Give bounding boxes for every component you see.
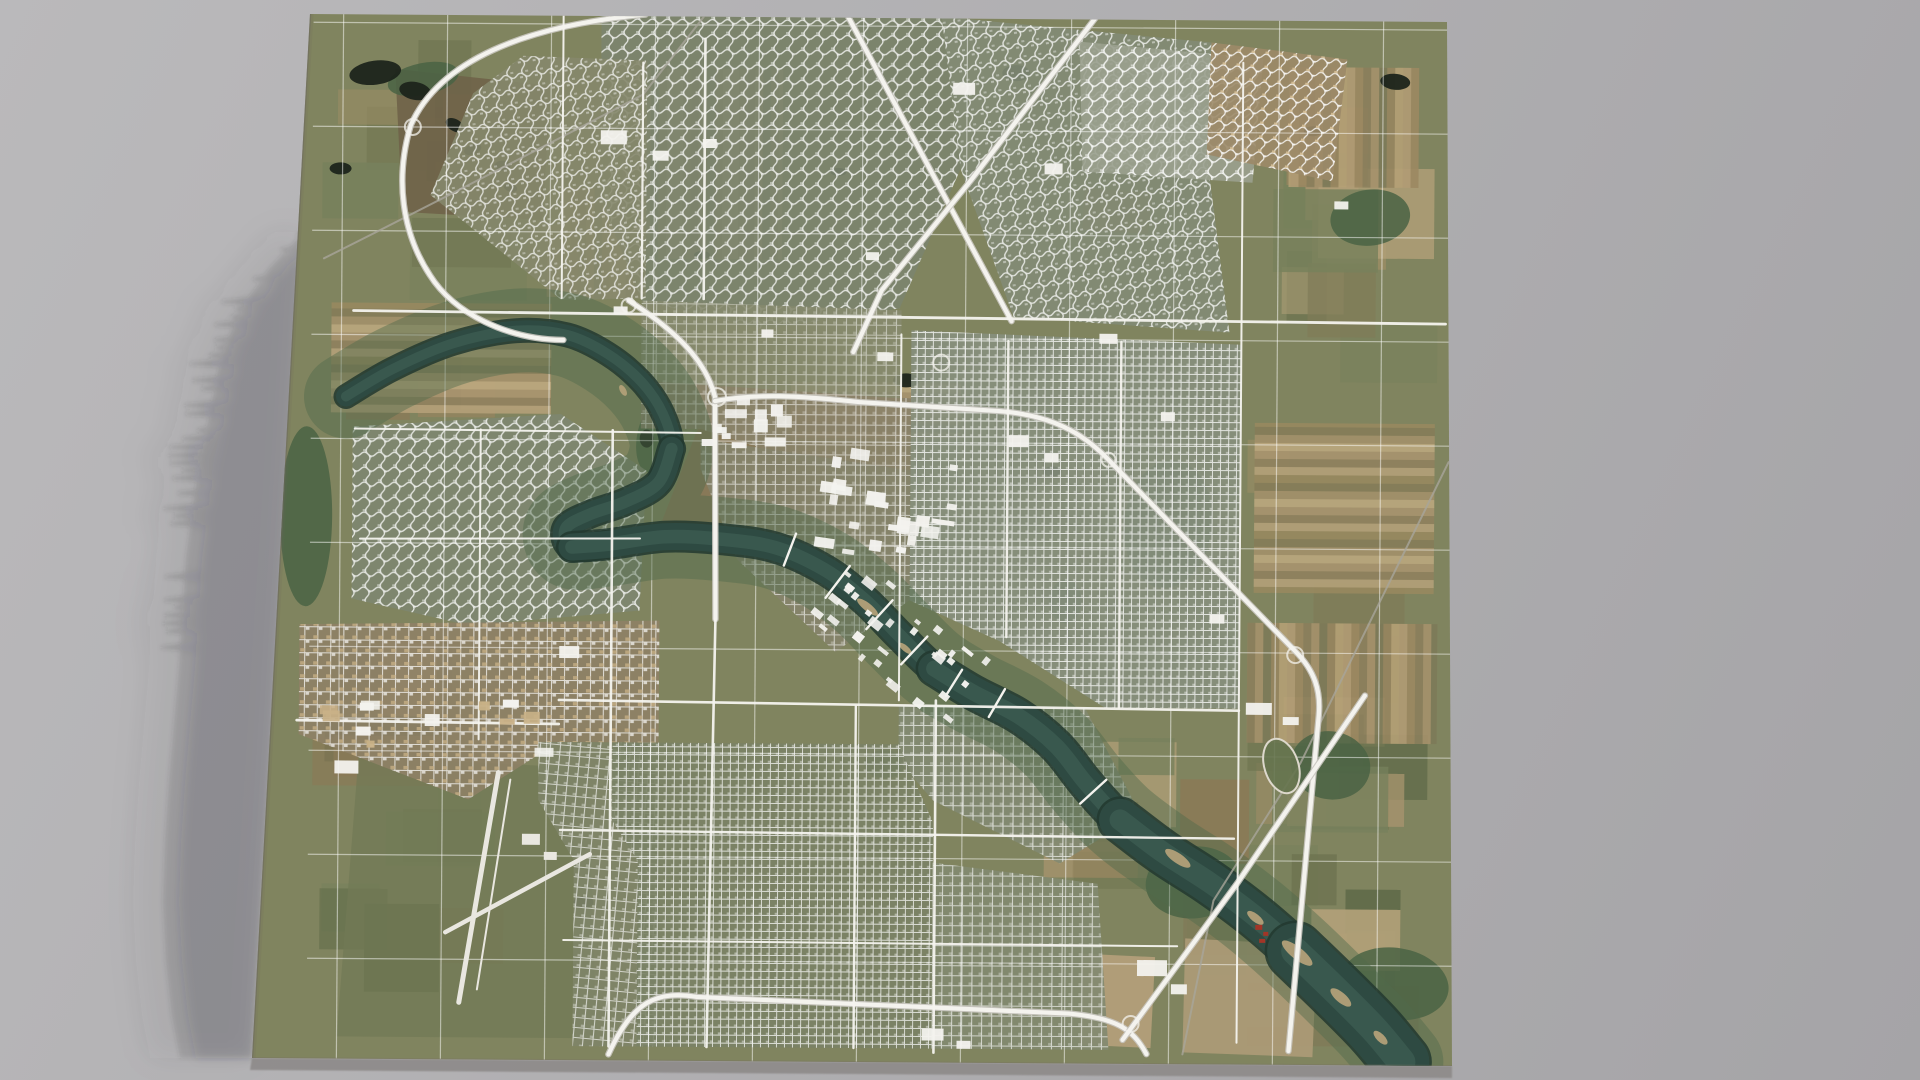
scene-background <box>0 0 1920 1080</box>
power-station <box>1255 925 1262 930</box>
power-station <box>1259 939 1265 943</box>
power-station <box>1263 932 1268 936</box>
